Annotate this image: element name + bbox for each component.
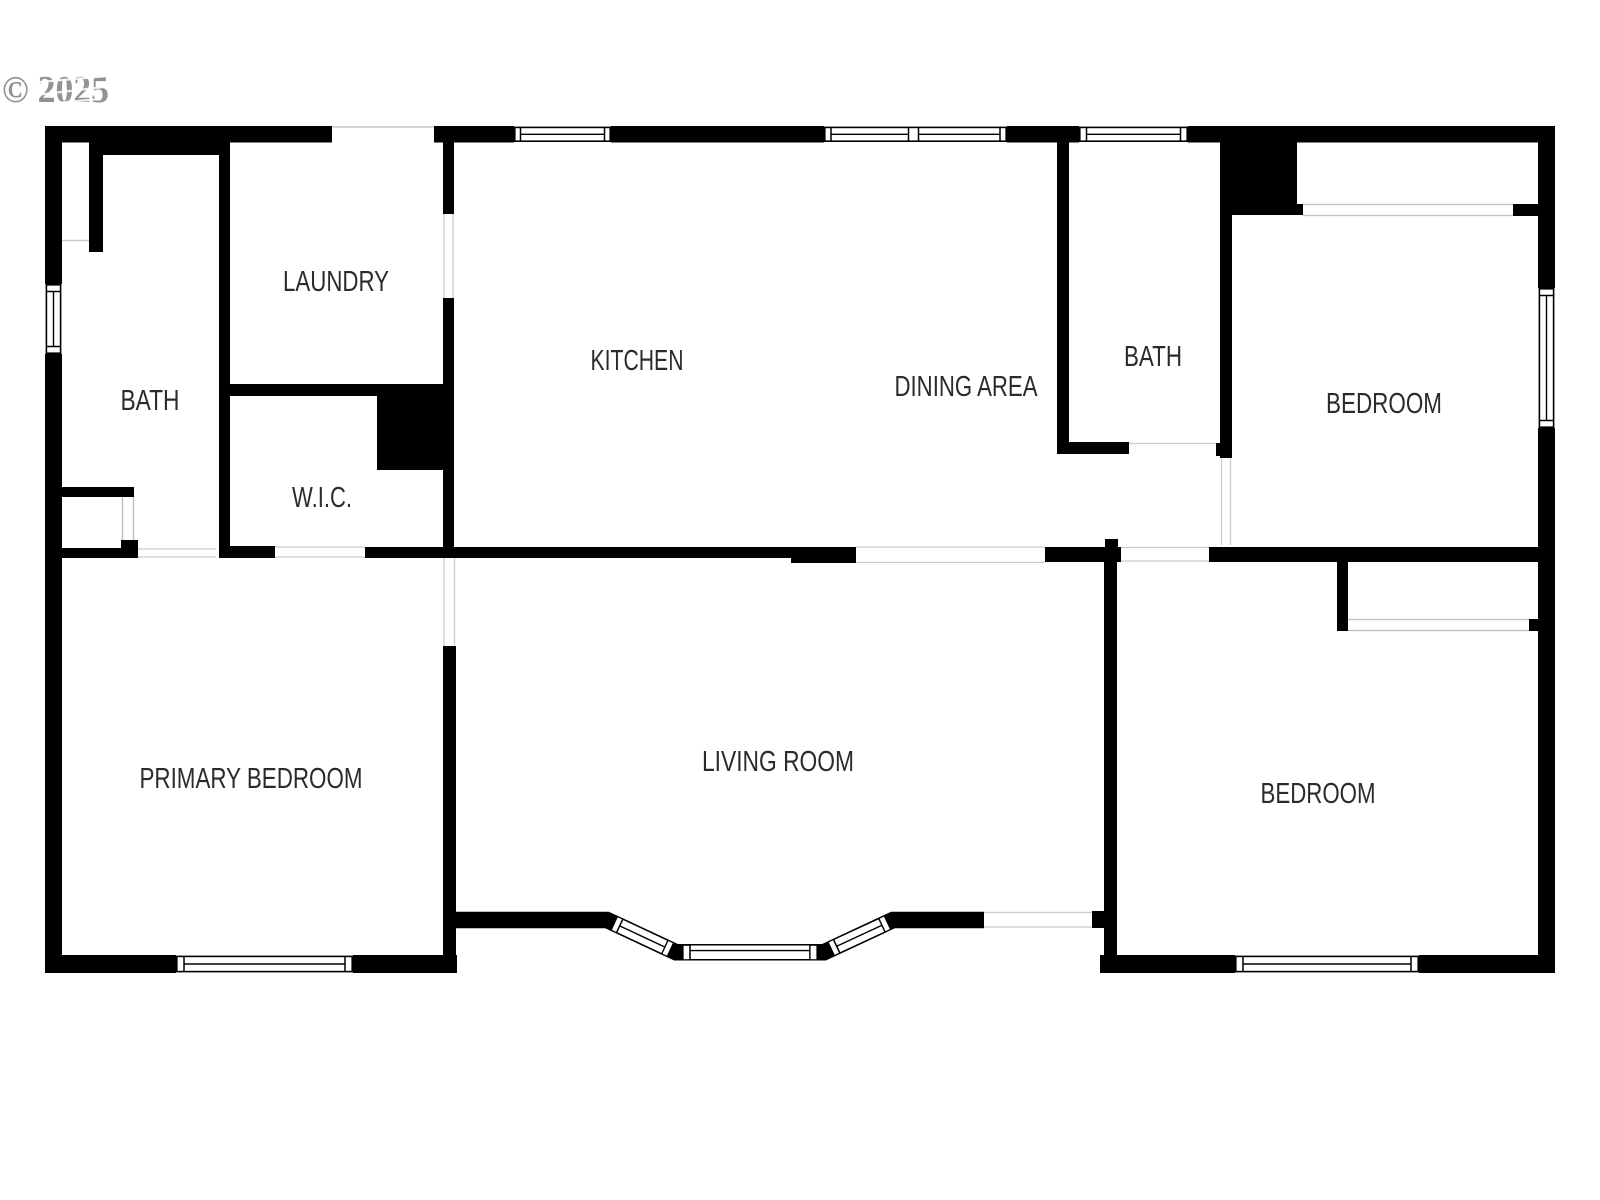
svg-text:© 2025: © 2025 bbox=[2, 69, 109, 111]
svg-text:W.I.C.: W.I.C. bbox=[292, 482, 352, 514]
svg-text:BATH: BATH bbox=[121, 385, 180, 417]
svg-text:LIVING ROOM: LIVING ROOM bbox=[702, 746, 854, 778]
svg-text:PRIMARY BEDROOM: PRIMARY BEDROOM bbox=[140, 763, 363, 795]
svg-text:DINING AREA: DINING AREA bbox=[895, 371, 1038, 403]
svg-text:BATH: BATH bbox=[1124, 341, 1182, 373]
svg-text:KITCHEN: KITCHEN bbox=[591, 345, 684, 377]
svg-text:LAUNDRY: LAUNDRY bbox=[283, 266, 389, 298]
svg-text:BEDROOM: BEDROOM bbox=[1261, 778, 1376, 810]
svg-text:BEDROOM: BEDROOM bbox=[1326, 388, 1442, 420]
